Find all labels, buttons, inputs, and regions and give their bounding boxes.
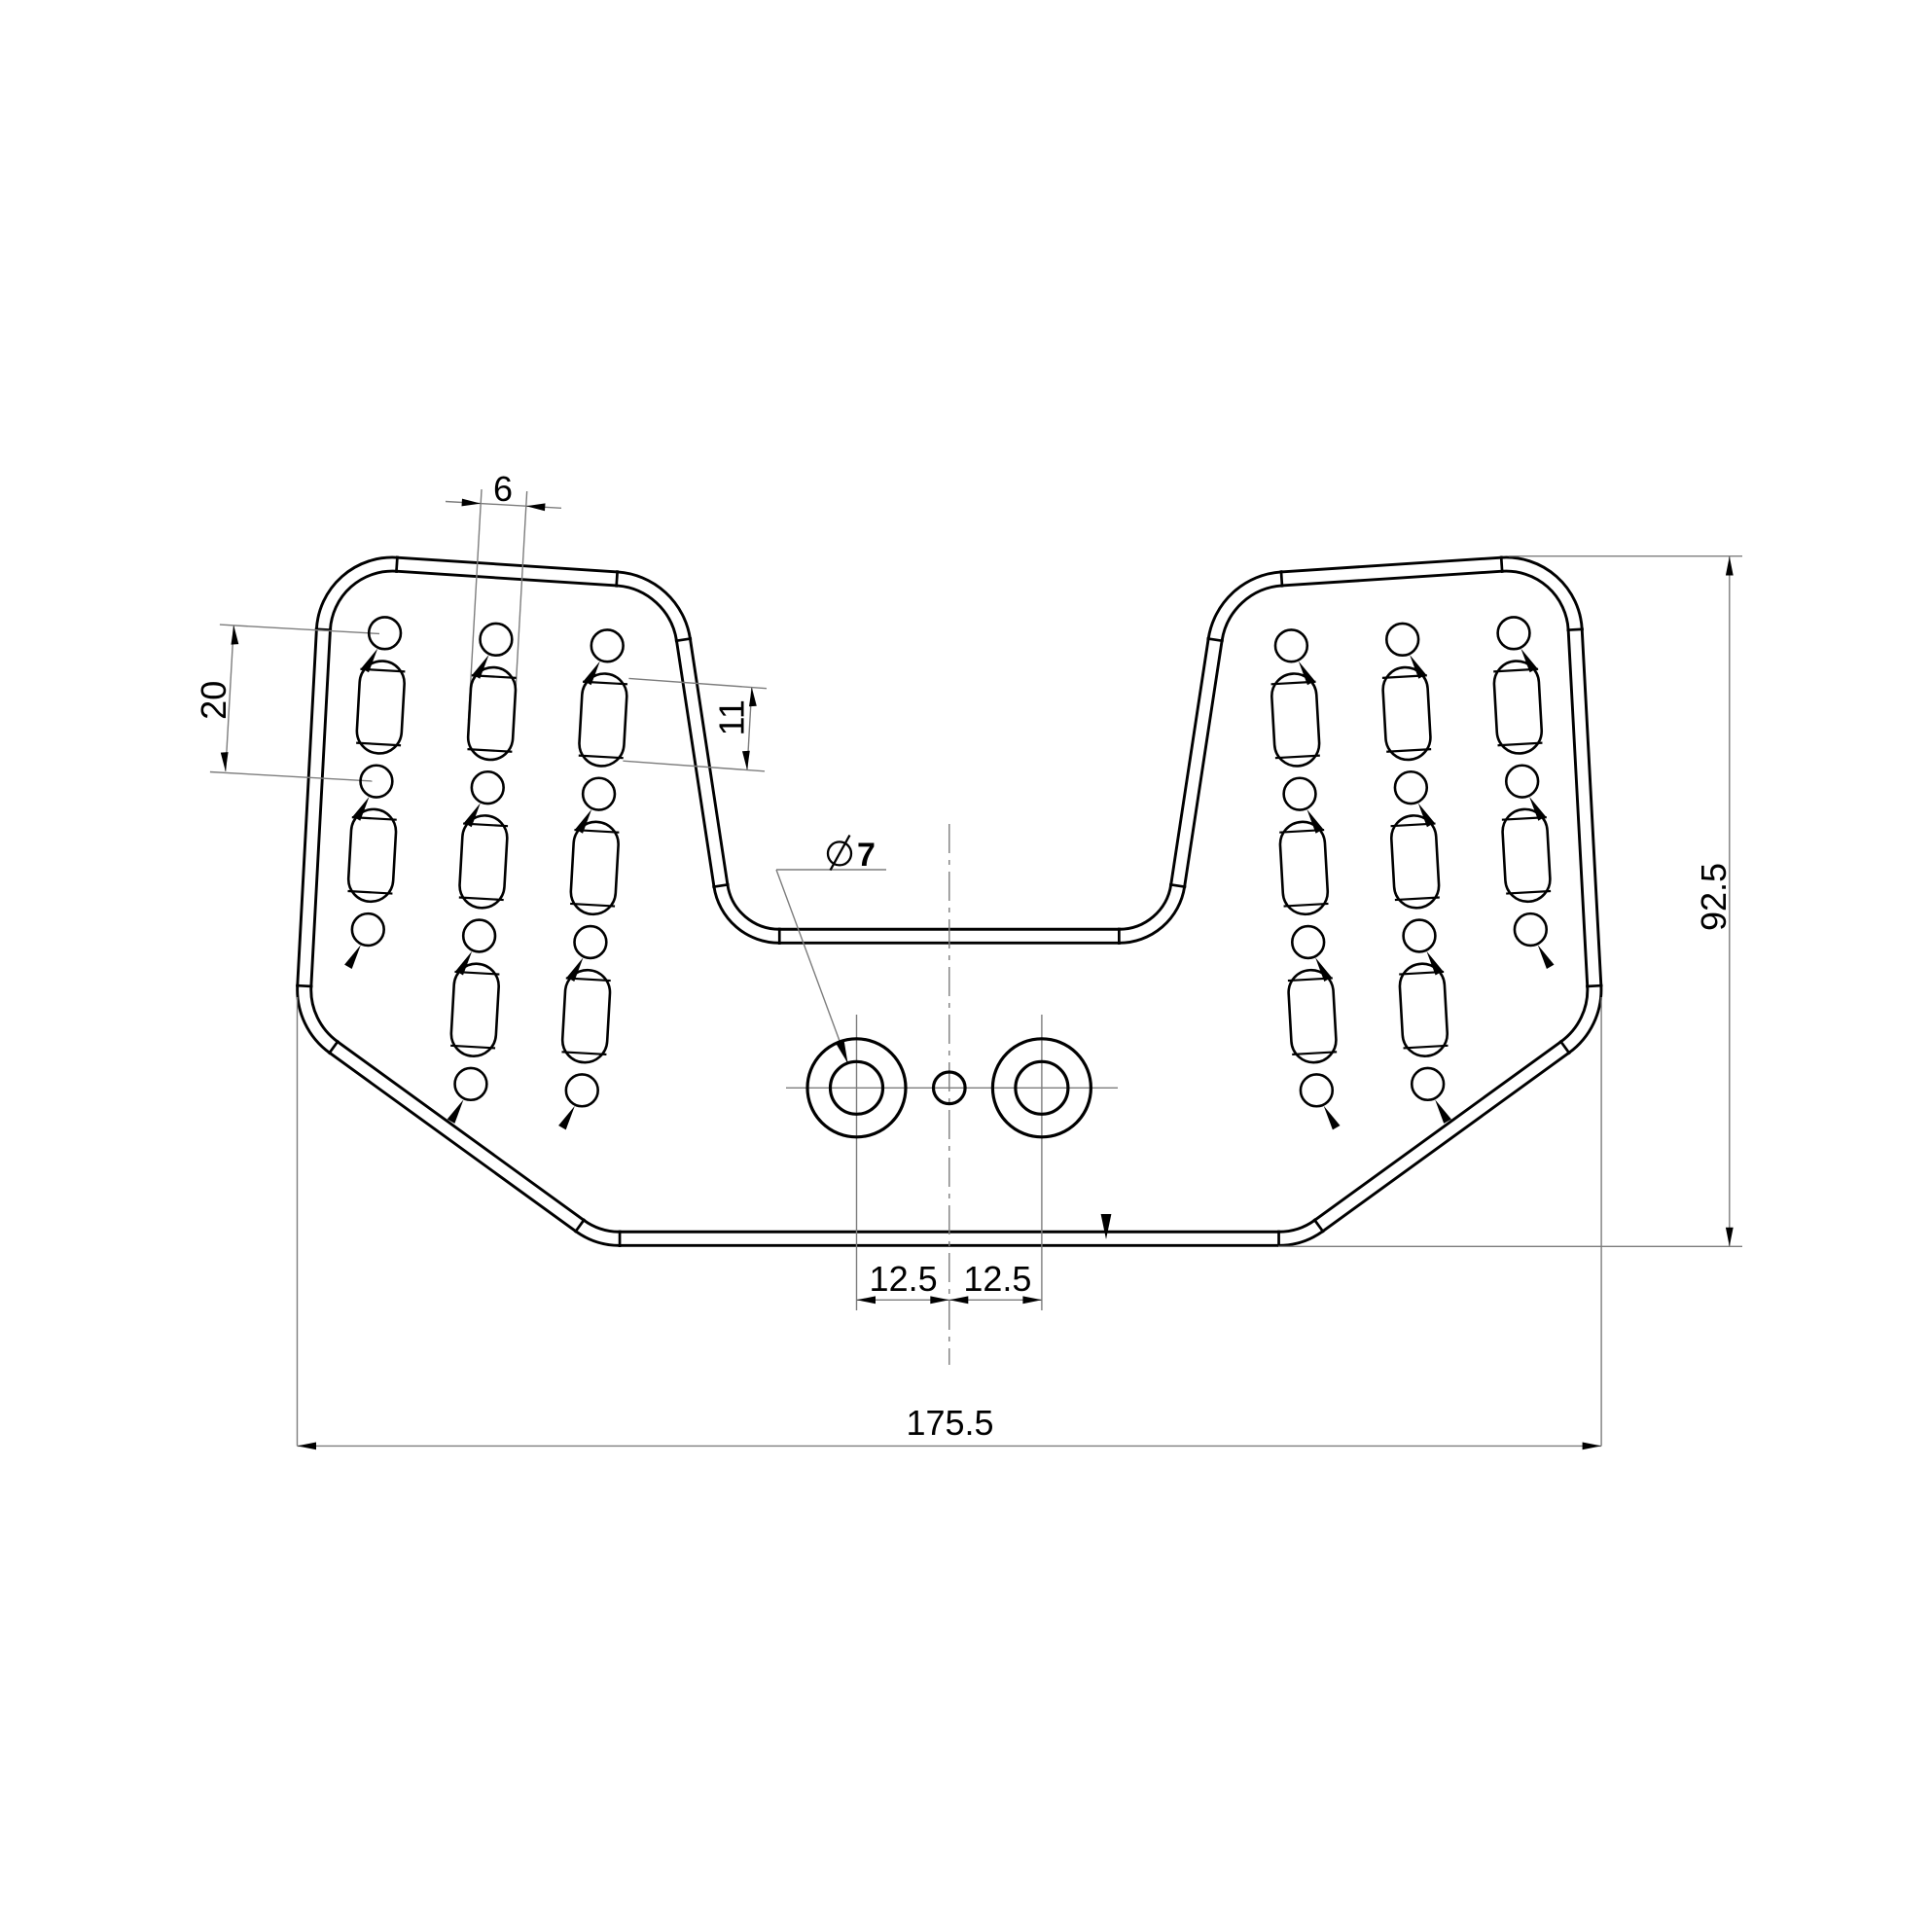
svg-text:175.5: 175.5 xyxy=(906,1403,993,1443)
svg-text:20: 20 xyxy=(194,681,233,720)
svg-text:7: 7 xyxy=(857,837,876,874)
svg-text:12.5: 12.5 xyxy=(870,1259,938,1299)
svg-text:92.5: 92.5 xyxy=(1694,863,1734,931)
svg-text:12.5: 12.5 xyxy=(963,1259,1031,1299)
svg-text:6: 6 xyxy=(493,469,513,509)
svg-text:11: 11 xyxy=(711,699,751,735)
